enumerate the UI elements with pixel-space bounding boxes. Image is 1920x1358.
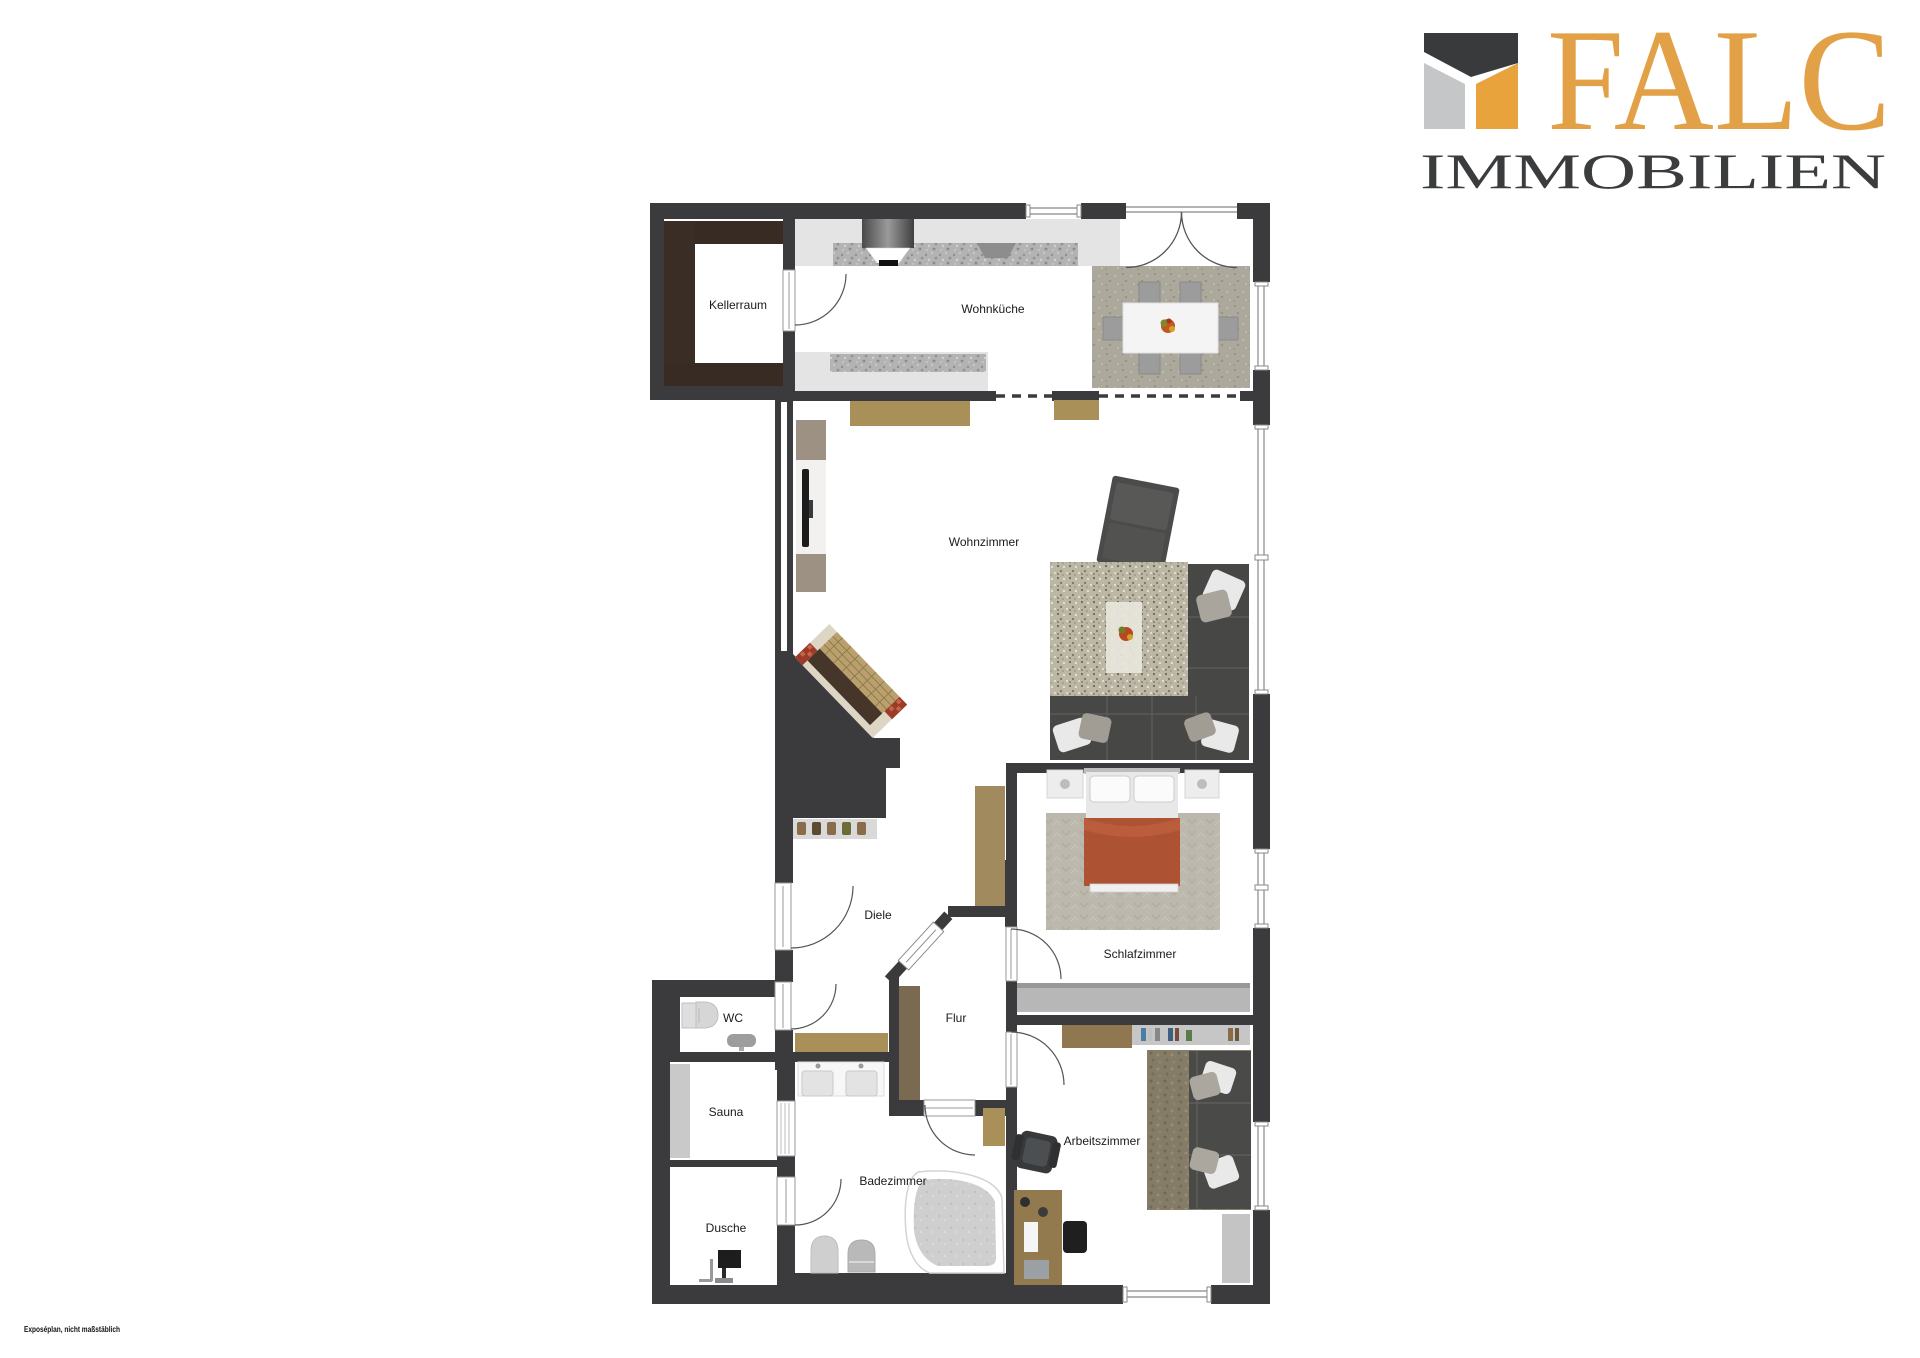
svg-text:Wohnküche: Wohnküche [961,302,1024,316]
svg-text:Kellerraum: Kellerraum [709,298,767,312]
svg-text:FALC: FALC [1547,0,1891,161]
svg-text:Schlafzimmer: Schlafzimmer [1104,947,1177,961]
svg-text:Diele: Diele [864,908,892,922]
svg-text:Badezimmer: Badezimmer [859,1174,926,1188]
svg-text:WC: WC [723,1011,743,1025]
svg-text:Dusche: Dusche [706,1221,747,1235]
svg-text:Flur: Flur [946,1011,967,1025]
svg-text:Wohnzimmer: Wohnzimmer [949,535,1019,549]
svg-text:Arbeitszimmer: Arbeitszimmer [1064,1134,1141,1148]
svg-text:Exposéplan, nicht maßstäblich: Exposéplan, nicht maßstäblich [24,1324,120,1334]
svg-text:IMMOBILIEN: IMMOBILIEN [1420,143,1886,199]
svg-text:Sauna: Sauna [709,1105,744,1119]
